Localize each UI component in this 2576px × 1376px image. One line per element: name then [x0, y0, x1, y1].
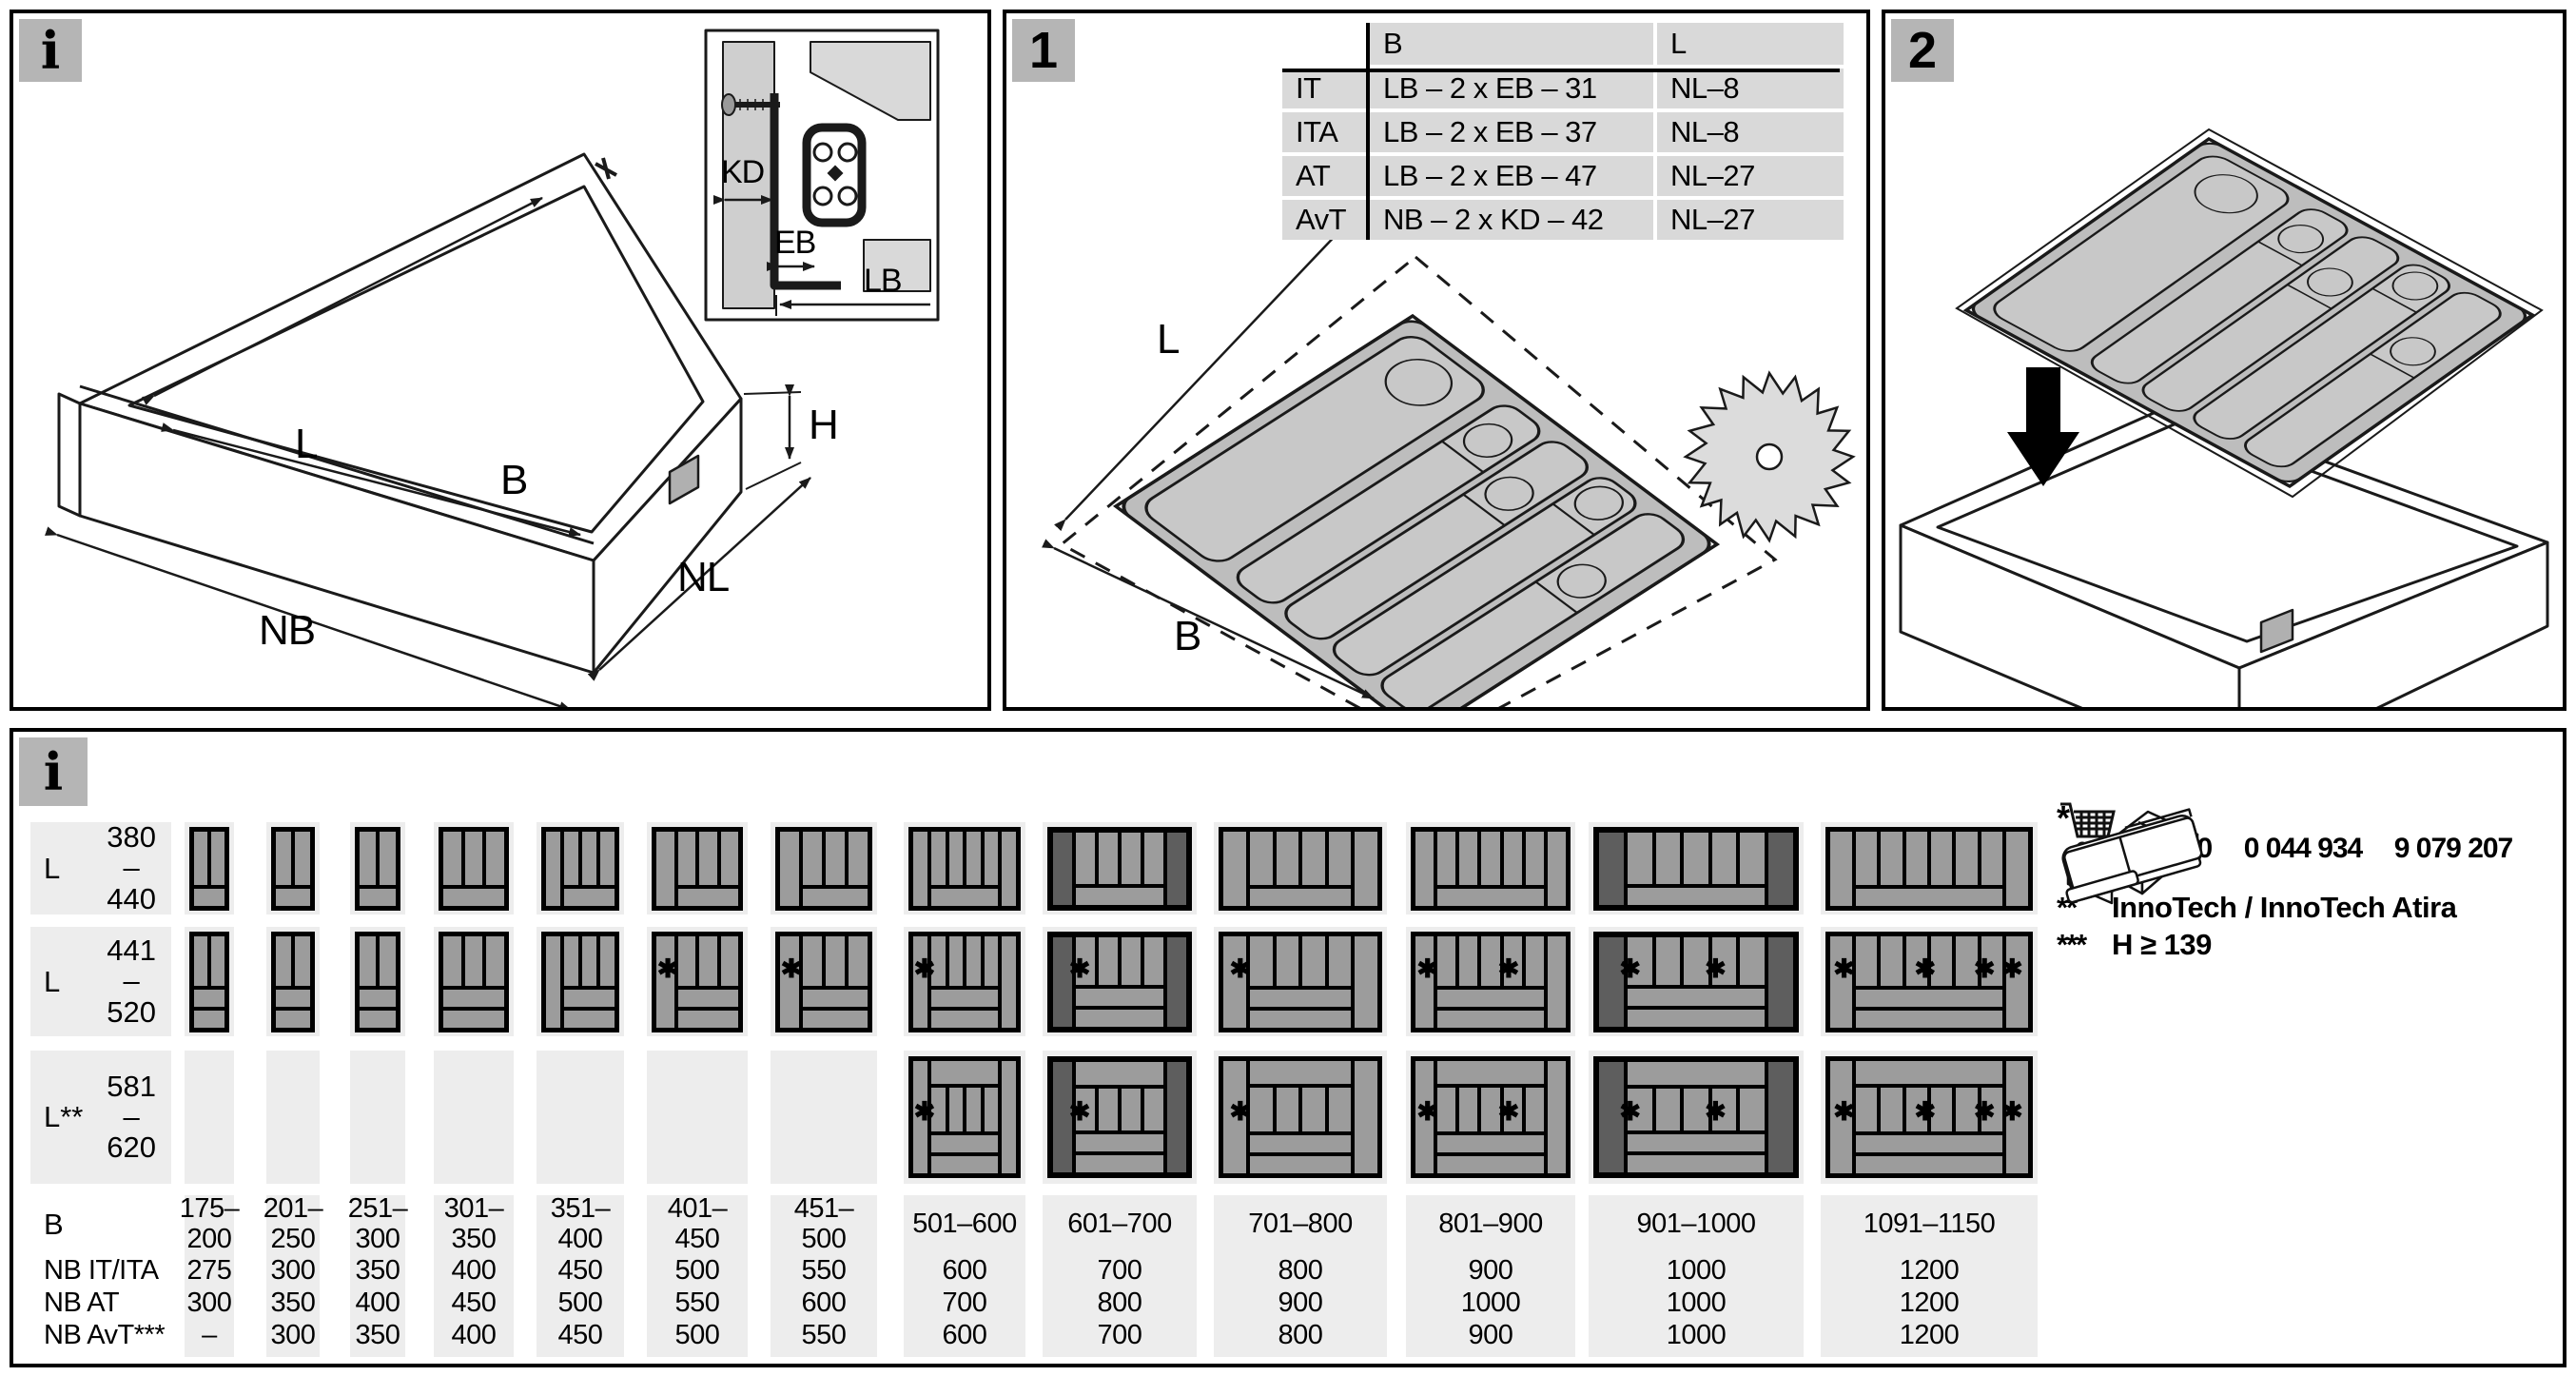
nb-at-value: 450: [434, 1287, 514, 1319]
matrix-cell-row1: [1406, 822, 1575, 914]
matrix-cell-labels: 501–600600700600: [904, 1195, 1025, 1357]
tray-inner: [1053, 833, 1186, 905]
tray-bottom-compartment: [1437, 1156, 1544, 1173]
nb-at-value: 350: [266, 1287, 320, 1319]
range-top: 380: [107, 822, 156, 853]
matrix-cell-row3: ✱: [1043, 1051, 1197, 1184]
gap: [1214, 914, 1387, 927]
gap: [1821, 1036, 2038, 1051]
table-l-formula-cell: NL–27: [1657, 200, 1844, 240]
nb-avt-value: 300: [266, 1319, 320, 1351]
gap: [185, 914, 234, 927]
nb-it-ita-value: 1200: [1821, 1254, 2038, 1287]
range-dash: –: [124, 966, 140, 996]
b-range: 401–450: [647, 1195, 748, 1254]
dim-label-eb: EB: [774, 225, 815, 262]
tray-bottom-compartment: [360, 1011, 396, 1028]
matrix-cell-row1: [185, 822, 234, 914]
tray-side-compartment: [1768, 937, 1793, 1027]
availability-star: ✱: [1705, 956, 1727, 982]
tray-side-compartment: [546, 936, 560, 1028]
tray-pictogram: [541, 827, 619, 911]
tray-slot: [194, 832, 207, 885]
tray-slot: [1277, 936, 1299, 986]
tray-slots: [194, 832, 224, 885]
tray-top-compartment: [1250, 1061, 1351, 1084]
tray-slot: [1250, 832, 1273, 885]
tray-bottom-compartment: [194, 1011, 224, 1028]
tray-slot: [1526, 1088, 1544, 1131]
tray-pictogram: [1593, 827, 1799, 911]
tray-mid: [1250, 936, 1351, 1028]
tray-slots: [803, 936, 868, 986]
nb-at-value: 400: [350, 1287, 405, 1319]
tray-pictogram: [189, 827, 229, 911]
tray-pictogram: [1047, 827, 1192, 911]
gap: [1214, 1184, 1387, 1195]
tray-mid: [678, 832, 738, 906]
matrix-cell-labels: 901–1000100010001000: [1589, 1195, 1804, 1357]
row-header-l2: L 441–520: [30, 927, 171, 1036]
matrix-cell-labels: 401–450500550500: [647, 1195, 748, 1357]
b-range-line: 601–700: [1067, 1209, 1171, 1240]
b-range: 301–350: [434, 1195, 514, 1254]
nb-avt-value: 900: [1406, 1319, 1575, 1351]
tray-slots: [194, 936, 224, 986]
gap: [434, 1036, 514, 1051]
accessory-row: * 0 074 4300 044 9349 079 207: [2057, 798, 2565, 865]
availability-star: ✱: [1498, 956, 1520, 982]
matrix-cell-labels: 301–350400450400: [434, 1195, 514, 1357]
tray-slot: [1329, 1088, 1352, 1131]
matrix-cell-row2: ✱✱✱✱: [1821, 927, 2038, 1036]
gap: [1043, 1184, 1197, 1195]
tray-bottom-compartment: [678, 990, 738, 1007]
tray-slot: [1076, 833, 1095, 884]
tray-slots: [1437, 832, 1544, 885]
tray-inner: [360, 936, 396, 1028]
matrix-column: 201–250300350300: [266, 822, 320, 1357]
table-corner-cell: [1282, 23, 1366, 65]
tray-bottom-compartment: [443, 1011, 504, 1028]
matrix-cell-row2: ✱: [1043, 927, 1197, 1036]
tray-inner: [1599, 833, 1793, 905]
tray-slot: [295, 832, 310, 885]
tray-slot: [949, 832, 964, 885]
availability-star: ✱: [1915, 1099, 1937, 1125]
tray-slot: [1656, 833, 1681, 884]
nb-it-ita-value: 1000: [1589, 1254, 1804, 1287]
matrix-cell-row2: ✱: [904, 927, 1025, 1036]
b-range-line: 450: [675, 1225, 720, 1255]
matrix-cell-row1: [904, 822, 1025, 914]
gap: [1821, 1184, 2038, 1195]
tray-bottom-compartment: [194, 889, 224, 906]
tray-insertion-drawing: [1885, 13, 2563, 707]
tray-slots: [678, 832, 738, 885]
tray-side-compartment: [1768, 1062, 1793, 1172]
tray-side-compartment: [1167, 1062, 1186, 1172]
row-label: L: [44, 852, 60, 886]
dimension-table: B L ITLB – 2 x EB – 31NL–8ITALB – 2 x EB…: [1282, 23, 1840, 240]
b-range: 701–800: [1214, 1195, 1387, 1254]
tray-slot: [194, 936, 207, 986]
tray-pictogram: ✱: [1219, 1056, 1382, 1178]
step1-badge: 1: [1012, 19, 1075, 82]
b-range: 175–200: [185, 1195, 234, 1254]
tray-bottom-compartment: [931, 1156, 998, 1173]
tray-slots: [443, 936, 504, 986]
tray-slot: [1881, 936, 1902, 986]
tray-slot: [564, 936, 578, 986]
matrix-column: ✱✱501–600600700600: [904, 822, 1025, 1357]
availability-star: ✱: [1069, 956, 1091, 982]
matrix-cell-row1: [1589, 822, 1804, 914]
tray-slot: [1122, 1089, 1141, 1130]
matrix-cell-row3: ✱: [904, 1051, 1025, 1184]
tray-bottom-compartment: [803, 889, 868, 906]
tray-bottom-compartment: [678, 1011, 738, 1028]
matrix-cell-row1: [771, 822, 877, 914]
tray-slots: [443, 832, 504, 885]
matrix-cell-labels: 451–500550600550: [771, 1195, 877, 1357]
tray-slot: [1099, 937, 1118, 985]
tray-side-compartment: [1548, 936, 1566, 1028]
tray-top-compartment: [931, 1061, 998, 1084]
info-badge: i: [19, 19, 82, 82]
tray-slots: [1250, 1088, 1351, 1131]
matrix-cell-row1: [1821, 822, 2038, 914]
tray-pictogram: ✱✱: [1593, 932, 1799, 1032]
tray-side-compartment: [1355, 936, 1377, 1028]
tray-slot: [1437, 936, 1455, 986]
tray-slot: [1740, 833, 1765, 884]
availability-star: ✱: [1705, 1099, 1727, 1125]
tray-side-compartment: [1002, 936, 1016, 1028]
tray-top-compartment: [1437, 1061, 1544, 1084]
tray-bottom-compartment: [1856, 1156, 2002, 1173]
nb-header-at: NB AT: [30, 1287, 171, 1319]
availability-star: ✱: [1974, 956, 1996, 982]
tray-bottom-compartment: [1628, 1010, 1765, 1027]
footnote-text: H ≥ 139: [2112, 927, 2212, 964]
tray-bottom-compartment: [803, 1011, 868, 1028]
availability-star: ✱: [1833, 956, 1855, 982]
nb-it-ita-value: 700: [1043, 1254, 1197, 1287]
tray-slot: [211, 832, 224, 885]
tray-pictogram: ✱: [652, 932, 743, 1032]
matrix-info-badge: i: [19, 737, 88, 806]
tray-inner: [546, 832, 615, 906]
b-range-line: 350: [452, 1225, 497, 1255]
b-header: B: [30, 1195, 171, 1254]
tray-slot: [699, 832, 716, 885]
tray-bottom-compartment: [1628, 888, 1765, 905]
availability-star: ✱: [914, 956, 936, 982]
range-bottom: 520: [107, 997, 156, 1028]
tray-bottom-compartment: [1437, 1135, 1544, 1152]
b-range-line: 1091–1150: [1864, 1209, 1996, 1240]
tray-pictogram: ✱✱: [1411, 932, 1571, 1032]
nb-it-ita-value: 350: [350, 1254, 405, 1287]
gap: [434, 914, 514, 927]
tray-slot: [276, 832, 291, 885]
tray-inner: [360, 832, 396, 906]
matrix-cell-labels: 801–9009001000900: [1406, 1195, 1575, 1357]
matrix-column: ✱✱✱✱901–1000100010001000: [1589, 822, 1804, 1357]
tray-pictogram: ✱: [908, 932, 1021, 1032]
tray-mid: [931, 936, 998, 1028]
nb-it-ita-value: 300: [266, 1254, 320, 1287]
tray-mid: [1437, 1061, 1544, 1173]
availability-star: ✱: [1498, 1099, 1520, 1125]
range-bottom: 620: [107, 1132, 156, 1163]
tray-bottom-compartment: [276, 990, 310, 1007]
availability-star: ✱: [1230, 1099, 1252, 1125]
tray-inner: [443, 832, 504, 906]
tray-pictogram: [1411, 827, 1571, 911]
tray-side-compartment: [1002, 1061, 1016, 1173]
tray-slot: [1302, 936, 1325, 986]
tray-top-compartment: [1628, 1062, 1765, 1085]
tray-slot: [803, 832, 822, 885]
gap: [904, 914, 1025, 927]
drawer-dimension-drawing: [13, 13, 987, 707]
matrix-cell-row3: ✱: [1214, 1051, 1387, 1184]
table-b-formula-cell: LB – 2 x EB – 37: [1370, 112, 1653, 152]
availability-star: ✱: [1619, 1099, 1641, 1125]
nb-it-ita-value: 400: [434, 1254, 514, 1287]
tray-top-compartment: [1076, 1062, 1163, 1085]
tray-slot: [1504, 832, 1522, 885]
tray-slots: [360, 832, 396, 885]
tray-slot: [1437, 832, 1455, 885]
matrix-cell-row2: [537, 927, 624, 1036]
gap: [350, 914, 405, 927]
step2-badge: 2: [1891, 19, 1954, 82]
matrix-column: ✱✱701–800800900800: [1214, 822, 1387, 1357]
tray-pictogram: ✱: [1219, 932, 1382, 1032]
b-range: 901–1000: [1589, 1195, 1804, 1254]
b-range-line: 175–: [180, 1194, 240, 1225]
tray-bottom-compartment: [443, 990, 504, 1007]
tray-pictogram: [652, 827, 743, 911]
tray-inner: [194, 832, 224, 906]
tray-slot: [582, 832, 596, 885]
nb-at-value: 1000: [1589, 1287, 1804, 1319]
tray-side-compartment: [1002, 832, 1016, 906]
nb-avt-value: 1200: [1821, 1319, 2038, 1351]
tray-slot: [966, 1088, 981, 1131]
tray-slot: [1856, 936, 1877, 986]
b-range: 501–600: [904, 1195, 1025, 1254]
b-range-line: 501–600: [912, 1209, 1016, 1240]
matrix-row-header-column: L 380–440 L 441–520 L** 581–620: [30, 822, 171, 1357]
b-range-line: 300: [356, 1225, 400, 1255]
tray-pictogram: [271, 932, 315, 1032]
matrix-cell-row3: [434, 1051, 514, 1184]
tray-bottom-compartment: [931, 1011, 998, 1028]
tray-slot: [826, 936, 845, 986]
gap: [1043, 1036, 1197, 1051]
nb-avt-value: 500: [647, 1319, 748, 1351]
tray-slot: [1656, 937, 1681, 985]
tray-slot: [803, 936, 822, 986]
table-column-rule: [1366, 23, 1370, 240]
row-header-l1: L 380–440: [30, 822, 171, 914]
tray-slots: [564, 832, 615, 885]
tray-side-compartment: [1830, 832, 1852, 906]
tray-bottom-compartment: [360, 990, 396, 1007]
panel-size-matrix: i L 380–440 L 441–520 L** 581–620: [10, 728, 2566, 1367]
tray-side-compartment: [1768, 833, 1793, 905]
tray-slot: [849, 832, 868, 885]
matrix-cell-labels: 201–250300350300: [266, 1195, 320, 1357]
tray-slot: [966, 936, 981, 986]
matrix-columns: 175–200275300–201–250300350300251–300350…: [185, 822, 2038, 1357]
availability-star: ✱: [1416, 1099, 1438, 1125]
tray-mid: [678, 936, 738, 1028]
gap: [1043, 914, 1197, 927]
tray-mid: [194, 832, 224, 906]
tray-pictogram: [1219, 827, 1382, 911]
b-range-line: 401–: [668, 1194, 728, 1225]
nb-header-avt: NB AvT***: [30, 1319, 171, 1351]
tray-slots: [1437, 936, 1544, 986]
b-range-line: 500: [802, 1225, 847, 1255]
tray-slot: [1459, 936, 1477, 986]
table-l-formula-cell: NL–8: [1657, 69, 1844, 108]
tray-inner: [276, 832, 310, 906]
tray-slot: [465, 936, 483, 986]
size-matrix: L 380–440 L 441–520 L** 581–620: [30, 822, 2038, 1357]
nb-at-value: 500: [537, 1287, 624, 1319]
b-range-line: 301–: [444, 1194, 504, 1225]
tray-bottom-compartment: [276, 1011, 310, 1028]
tray-slot: [1302, 1088, 1325, 1131]
matrix-cell-row2: ✱: [647, 927, 748, 1036]
matrix-cell-row2: [434, 927, 514, 1036]
b-range: 251–300: [350, 1195, 405, 1254]
panel-info-dimensions: i: [10, 10, 991, 711]
tray-slot: [1099, 833, 1118, 884]
availability-star: ✱: [914, 1099, 936, 1125]
tray-slot: [949, 936, 964, 986]
tray-pictogram: [271, 827, 315, 911]
tray-pictogram: ✱: [908, 1056, 1021, 1178]
range-bottom: 440: [107, 884, 156, 914]
nb-at-value: 550: [647, 1287, 748, 1319]
nb-it-ita-value: 275: [185, 1254, 234, 1287]
tray-slots: [1250, 936, 1351, 986]
tray-side-compartment: [780, 832, 799, 906]
tray-slots: [1076, 833, 1163, 884]
tray-mid: [194, 936, 224, 1028]
b-range-line: 251–: [348, 1194, 408, 1225]
tray-side-compartment: [1223, 832, 1246, 906]
matrix-cell-row3: [266, 1051, 320, 1184]
tray-side-compartment: [1415, 832, 1434, 906]
tray-slot: [1931, 832, 1952, 885]
tray-slot: [600, 936, 615, 986]
tray-slot: [380, 936, 396, 986]
tray-bottom-compartment: [1250, 1135, 1351, 1152]
instruction-sheet: i: [0, 0, 2576, 1376]
gap: [1589, 1036, 1804, 1051]
tray-bottom-compartment: [1856, 990, 2002, 1007]
table-system-cell: IT: [1282, 69, 1366, 108]
nb-avt-value: 700: [1043, 1319, 1197, 1351]
matrix-cell-row1: [434, 822, 514, 914]
tray-bottom-compartment: [276, 889, 310, 906]
footnote: ***H ≥ 139: [2057, 927, 2565, 964]
matrix-column: ✱401–450500550500: [647, 822, 748, 1357]
gap: [1406, 914, 1575, 927]
tray-bottom-compartment: [360, 889, 396, 906]
tray-slot: [1856, 1088, 1877, 1131]
tray-top-compartment: [1856, 1061, 2002, 1084]
tray-slot: [678, 832, 695, 885]
tray-slot: [699, 936, 716, 986]
tray-bottom-compartment: [1076, 1010, 1163, 1027]
tray-slot: [1250, 936, 1273, 986]
tray-side-compartment: [1548, 832, 1566, 906]
range-top: 581: [107, 1071, 156, 1102]
tray-slot: [1684, 833, 1708, 884]
tray-bottom-compartment: [1628, 1155, 1765, 1172]
tray-side-compartment: [2006, 832, 2028, 906]
tray-bottom-compartment: [1437, 1011, 1544, 1028]
matrix-cell-labels: 351–400450500450: [537, 1195, 624, 1357]
tray-slot: [582, 936, 596, 986]
availability-star: ✱: [657, 956, 679, 982]
gap: [771, 1036, 877, 1051]
matrix-column: ✱✱✱✱801–9009001000900: [1406, 822, 1575, 1357]
tray-bottom-compartment: [1437, 990, 1544, 1007]
b-range-line: 901–1000: [1636, 1209, 1755, 1240]
tray-bottom-compartment: [1076, 1134, 1163, 1151]
matrix-cell-row1: [350, 822, 405, 914]
nb-avt-value: –: [185, 1319, 234, 1351]
tray-slot: [1329, 936, 1352, 986]
nb-at-value: 800: [1043, 1287, 1197, 1319]
tray-side-compartment: [1355, 832, 1377, 906]
tray-bottom-compartment: [931, 889, 998, 906]
tray-mid: [564, 936, 615, 1028]
tray-side-compartment: [1599, 833, 1624, 905]
tray-slots: [276, 936, 310, 986]
tray-slot: [1656, 1089, 1681, 1130]
tray-bottom-compartment: [931, 1135, 998, 1152]
tray-bottom-compartment: [1250, 1011, 1351, 1028]
tray-slot: [985, 936, 999, 986]
tray-mid: [360, 832, 396, 906]
tray-slot: [721, 832, 738, 885]
tray-bottom-compartment: [194, 990, 224, 1007]
tray-pictogram: ✱: [1047, 1056, 1192, 1178]
matrix-cell-row3: ✱✱: [1406, 1051, 1575, 1184]
tray-slot: [931, 832, 946, 885]
tray-slot: [600, 832, 615, 885]
tray-mid: [931, 832, 998, 906]
b-range-line: 801–900: [1438, 1209, 1542, 1240]
tray-slot: [949, 1088, 964, 1131]
tray-bottom-compartment: [678, 889, 738, 906]
tray-bottom-compartment: [564, 889, 615, 906]
tray-side-compartment: [1053, 833, 1072, 905]
b-range-line: 200: [187, 1225, 232, 1255]
tray-slot: [564, 832, 578, 885]
